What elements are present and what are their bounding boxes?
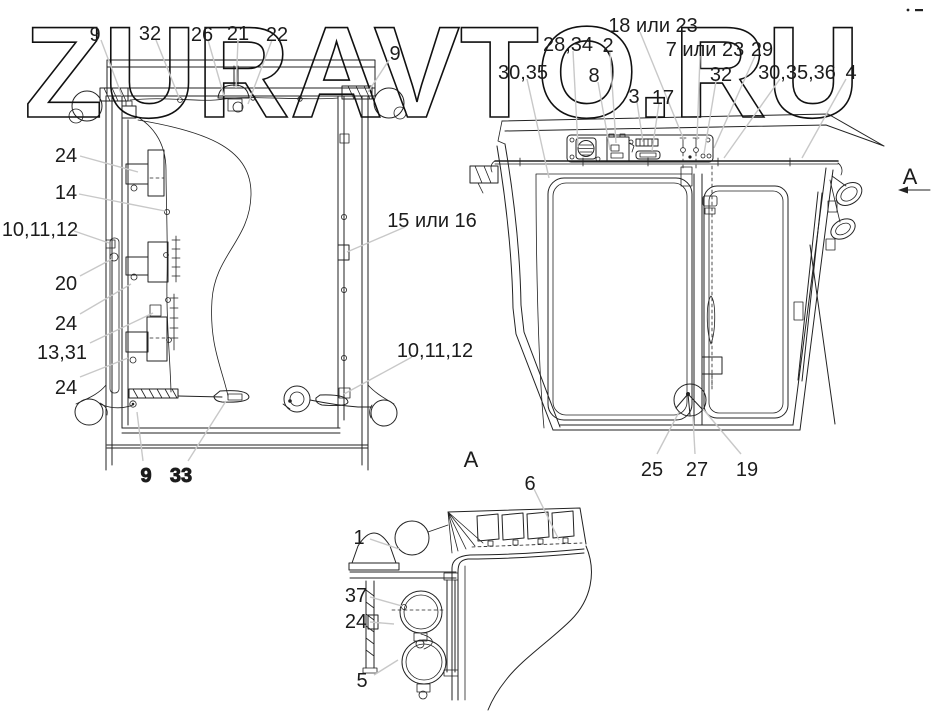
work-lamp-lower-icon: [402, 634, 446, 699]
callout-label: 22: [266, 24, 288, 46]
callout-label: 28,34: [543, 34, 593, 56]
callout-label: 3: [628, 86, 639, 108]
leader-line: [80, 358, 128, 377]
callout-label: 27: [686, 459, 708, 481]
roof-lamp-row-icon: [477, 511, 574, 546]
bottom-lamp-left-icon: [75, 399, 107, 425]
callout-label: 29: [751, 39, 773, 61]
callout-label: 7 или 23: [666, 39, 745, 61]
leader-line: [74, 231, 109, 243]
callout-label: 9: [140, 465, 151, 487]
side-view-drawing: [470, 114, 930, 430]
bottom-lamp-right-icon: [370, 400, 397, 426]
leader-line: [188, 401, 226, 461]
callout-label: 24: [55, 145, 77, 167]
callout-label: 24: [55, 377, 77, 399]
view-direction-marker: A: [903, 164, 918, 189]
diagram-page: ZURAVTO.RU 9322621229241410,11,12202413,…: [0, 0, 939, 719]
detail-a-drawing: [349, 508, 591, 710]
callout-label: 30,35: [498, 62, 548, 84]
leader-line: [80, 259, 112, 276]
leader-line: [344, 357, 412, 394]
leader-line: [693, 417, 695, 454]
leader-line: [370, 539, 399, 549]
callout-label: 2: [602, 35, 613, 57]
relay-box-group-3: [126, 294, 178, 363]
leader-line: [370, 597, 402, 606]
callout-label: 33: [170, 465, 192, 487]
watermark-text: ZURAVTO.RU: [24, 0, 860, 145]
callout-label: 32: [710, 64, 732, 86]
callout-label: 8: [588, 65, 599, 87]
callout-label: 24: [345, 611, 367, 633]
callout-label: 10,11,12: [2, 219, 78, 241]
view-markers: AA: [464, 164, 918, 472]
callout-label: 32: [139, 23, 161, 45]
callout-label: 25: [641, 459, 663, 481]
leader-line: [374, 660, 398, 675]
callout-label: 30,35,36: [758, 62, 836, 84]
callout-label: 6: [524, 473, 535, 495]
callout-label: 17: [652, 87, 674, 109]
front-lamps-and-wiper: [794, 176, 866, 424]
leader-line: [137, 412, 143, 461]
callout-label: 21: [227, 23, 249, 45]
callout-label: 26: [191, 24, 213, 46]
defroster-fan-icon: [674, 384, 706, 416]
detail-view-title: A: [464, 447, 479, 472]
callout-label: 13,31: [37, 342, 87, 364]
callout-label: 18 или 23: [608, 15, 698, 37]
print-artifact: [907, 9, 923, 12]
callout-label: 5: [356, 670, 367, 692]
callout-label: 14: [55, 182, 77, 204]
wiper-motor-icon: [283, 386, 310, 412]
leader-line: [534, 489, 559, 540]
relay-box-group-1: [126, 150, 164, 196]
callout-label: 10,11,12: [397, 340, 473, 362]
callout-label: 4: [845, 62, 856, 84]
work-lamp-upper-icon: [392, 591, 444, 648]
callout-label: 24: [55, 313, 77, 335]
callout-label: 37: [345, 585, 367, 607]
leader-line: [657, 412, 679, 454]
leader-line: [703, 409, 741, 454]
callout-label: 20: [55, 273, 77, 295]
callout-label: 9: [89, 24, 100, 46]
callout-label: 15 или 16: [387, 210, 477, 232]
wiper-assembly-rear: [100, 389, 372, 408]
callout-label: 1: [353, 527, 364, 549]
diagram-canvas: ZURAVTO.RU 9322621229241410,11,12202413,…: [0, 0, 939, 719]
relay-box-group-2: [126, 236, 180, 282]
callout-label: 9: [389, 43, 400, 65]
callout-label: 19: [736, 459, 758, 481]
